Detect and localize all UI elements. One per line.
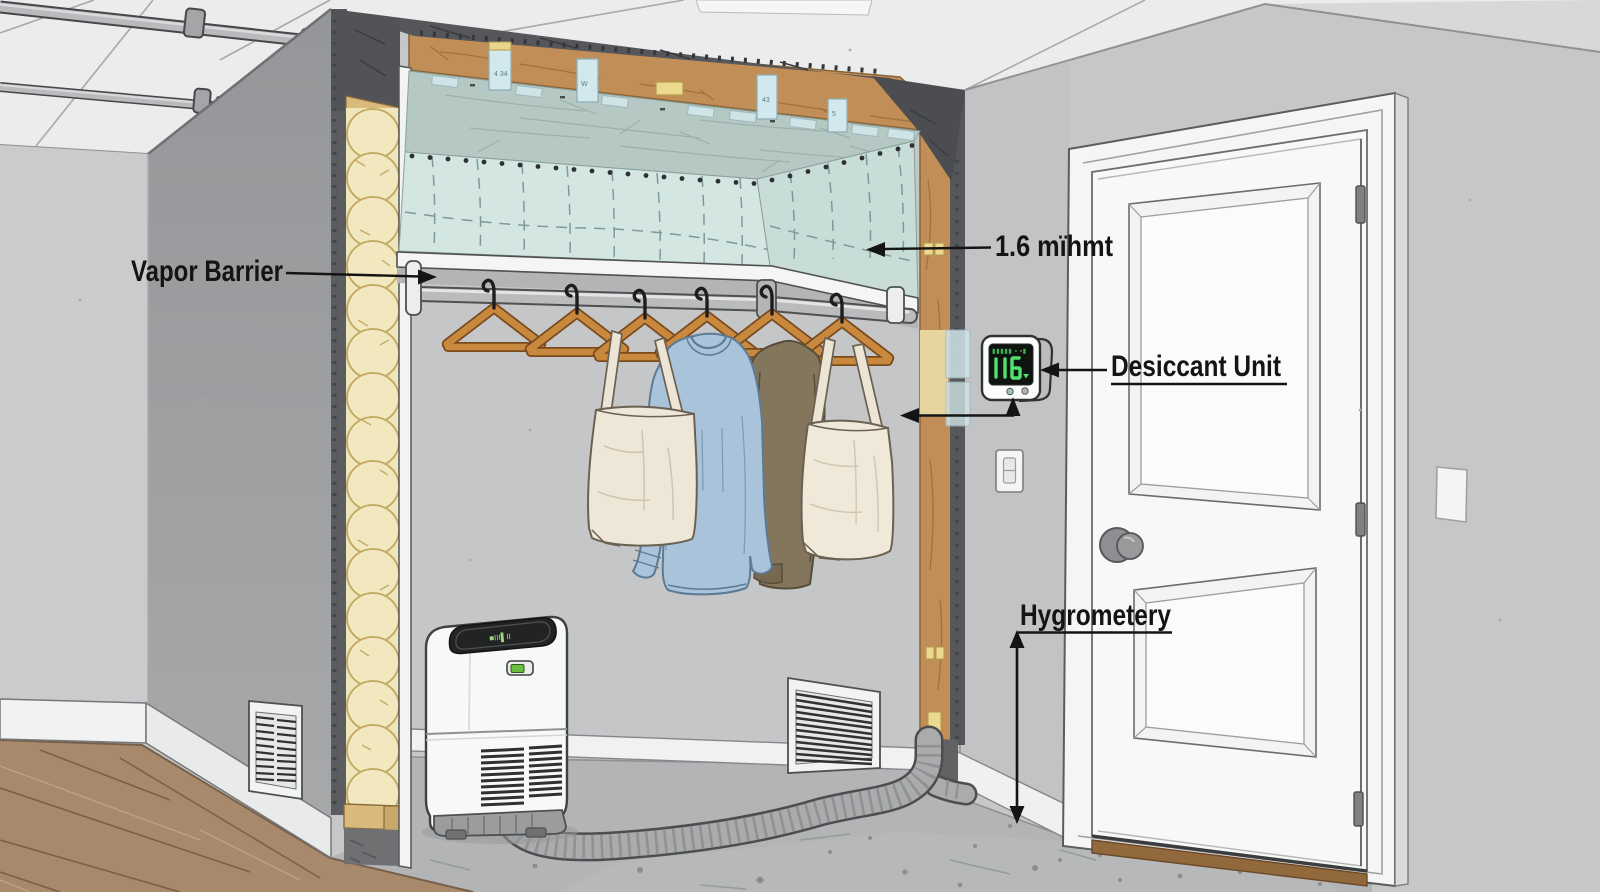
svg-text:1.6 mïhmt: 1.6 mïhmt (995, 230, 1113, 263)
svg-text:5: 5 (832, 111, 836, 118)
svg-text:4 34: 4 34 (494, 71, 508, 78)
svg-text:Hygrometery: Hygrometery (1020, 599, 1171, 632)
svg-text:Vapor Barrier: Vapor Barrier (131, 255, 283, 288)
svg-text:Desiccant Unit: Desiccant Unit (1111, 350, 1281, 383)
svg-text:W: W (581, 81, 588, 88)
svg-text:43: 43 (762, 97, 770, 104)
svg-text:▮▮▮▮▮ ▪ ▪▮: ▮▮▮▮▮ ▪ ▪▮ (992, 348, 1027, 355)
